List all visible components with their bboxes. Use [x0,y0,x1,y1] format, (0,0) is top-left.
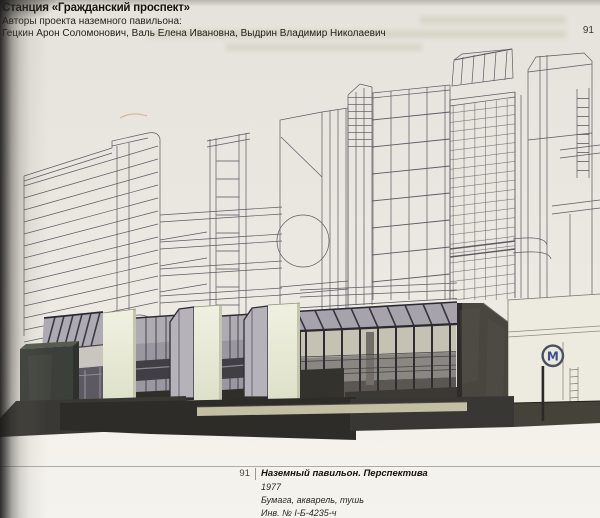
glass-bay [136,307,194,403]
pylon [194,305,222,405]
caption-year: 1977 [261,482,281,492]
showthrough-ghost-text [420,16,566,24]
glass-bay [222,306,268,401]
caption-divider-line [0,466,600,467]
mid-facade-tower [372,85,450,300]
station-title: Станция «Гражданский проспект» [2,2,190,14]
pylon [268,303,300,403]
authors-label: Авторы проекта наземного павильона: [2,16,182,27]
caption-medium: Бумага, акварель, тушь [261,495,364,505]
chamfer-pillar [244,306,268,397]
glass-hall [296,299,457,411]
caption-figure-number: 91 [226,468,250,479]
pylon [103,309,136,407]
artwork-drawing: М [0,44,600,458]
caption-separator [255,468,256,480]
caption-title: Наземный павильон. Перспектива [261,468,428,479]
right-slab-tower [528,53,600,300]
street-platform [0,396,600,440]
circle-tower [277,108,348,312]
authors-names: Гецкин Арон Соломонович, Валь Елена Иван… [2,28,386,39]
caption-inventory: Инв. № I-Б-4235-ч [261,508,336,518]
scanned-book-page: Станция «Гражданский проспект» Авторы пр… [0,0,600,518]
metro-sign-pole [542,366,545,421]
pink-scribble [120,114,147,118]
metro-logo-letter: М [547,349,559,363]
end-pylon [457,303,508,410]
grid-tower-with-skylight [450,49,551,300]
narrow-tower [348,84,372,305]
page-number: 91 [570,25,594,36]
chamfer-pillar [170,307,194,398]
